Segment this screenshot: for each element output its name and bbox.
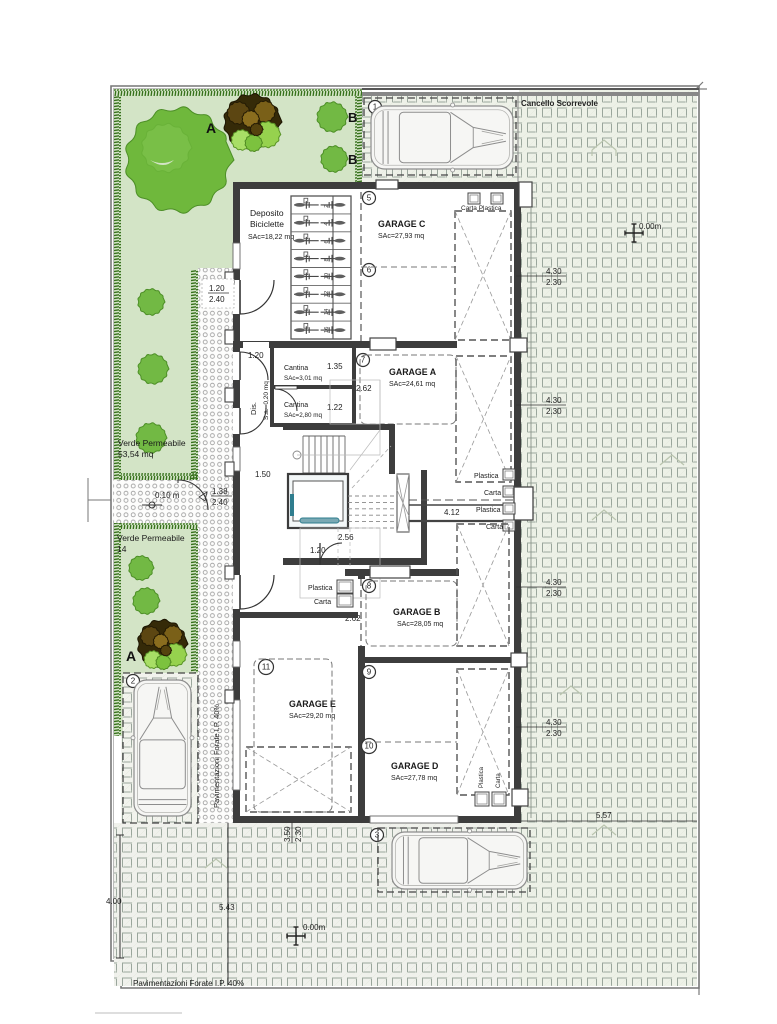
svg-text:GARAGE C: GARAGE C xyxy=(378,219,426,229)
svg-text:GARAGE B: GARAGE B xyxy=(393,607,440,617)
svg-text:3.50: 3.50 xyxy=(283,826,292,842)
svg-text:Carta: Carta xyxy=(496,773,502,788)
svg-text:Cantina: Cantina xyxy=(284,402,308,409)
svg-text:14: 14 xyxy=(117,544,127,554)
svg-text:2: 2 xyxy=(324,205,330,208)
svg-text:Carta Plastica: Carta Plastica xyxy=(461,205,502,212)
svg-text:4: 4 xyxy=(324,222,330,225)
svg-text:10: 10 xyxy=(324,273,330,279)
svg-text:B: B xyxy=(348,152,357,167)
svg-text:Plastica: Plastica xyxy=(308,585,333,592)
svg-text:SAc=2,80 mq: SAc=2,80 mq xyxy=(284,412,322,419)
svg-text:Biciclette: Biciclette xyxy=(250,219,284,229)
svg-text:2.56: 2.56 xyxy=(338,533,354,542)
svg-text:1.38: 1.38 xyxy=(212,487,228,496)
svg-text:SAc=27,78 mq: SAc=27,78 mq xyxy=(391,775,437,782)
svg-text:GARAGE A: GARAGE A xyxy=(389,367,437,377)
svg-text:1.22: 1.22 xyxy=(327,403,343,412)
svg-text:1.20: 1.20 xyxy=(248,351,264,360)
svg-text:Carta: Carta xyxy=(486,524,503,531)
svg-text:11: 11 xyxy=(262,663,271,672)
svg-text:4.30: 4.30 xyxy=(546,267,562,276)
svg-text:2.62: 2.62 xyxy=(356,384,372,393)
svg-text:16: 16 xyxy=(324,327,330,333)
svg-text:5: 5 xyxy=(367,194,372,203)
svg-text:2.40: 2.40 xyxy=(209,295,225,304)
svg-text:Plastica: Plastica xyxy=(479,766,485,788)
svg-text:A: A xyxy=(126,648,136,664)
svg-text:2.30: 2.30 xyxy=(546,589,562,598)
svg-text:2: 2 xyxy=(131,677,136,686)
svg-text:8: 8 xyxy=(367,582,372,591)
svg-text:1.20: 1.20 xyxy=(209,284,225,293)
svg-text:10: 10 xyxy=(365,742,374,751)
svg-text:4.30: 4.30 xyxy=(546,578,562,587)
svg-text:Pavimentazioni Forate I.P. 40%: Pavimentazioni Forate I.P. 40% xyxy=(133,979,244,988)
svg-text:Carta: Carta xyxy=(484,490,501,497)
svg-text:B: B xyxy=(348,110,357,125)
svg-text:S.a.=0,20 mq: S.a.=0,20 mq xyxy=(263,381,270,420)
svg-text:Verde Permeabile: Verde Permeabile xyxy=(117,533,185,543)
svg-text:9: 9 xyxy=(367,668,372,677)
svg-text:3: 3 xyxy=(375,831,380,840)
svg-text:5.57: 5.57 xyxy=(596,811,612,820)
svg-text:SAc=18,22 mq: SAc=18,22 mq xyxy=(248,234,294,241)
svg-text:0.00m: 0.00m xyxy=(303,923,326,932)
svg-text:Deposito: Deposito xyxy=(250,208,284,218)
svg-text:1.50: 1.50 xyxy=(255,470,271,479)
svg-text:Dis.: Dis. xyxy=(249,402,258,415)
svg-text:2.40: 2.40 xyxy=(212,498,228,507)
svg-text:GARAGE E: GARAGE E xyxy=(289,699,336,709)
svg-text:0.00m: 0.00m xyxy=(639,222,662,231)
svg-text:Plastica: Plastica xyxy=(476,507,501,514)
svg-text:4.30: 4.30 xyxy=(546,396,562,405)
svg-text:Cantina: Cantina xyxy=(284,365,308,372)
svg-text:Verde Permeabile: Verde Permeabile xyxy=(118,438,186,448)
svg-text:6: 6 xyxy=(324,240,330,243)
svg-text:4.12: 4.12 xyxy=(444,508,460,517)
svg-text:12: 12 xyxy=(324,291,330,297)
svg-text:1.35: 1.35 xyxy=(327,362,343,371)
svg-text:Pavimentazioni Forate I.P. 40%: Pavimentazioni Forate I.P. 40% xyxy=(212,704,221,808)
svg-text:4.30: 4.30 xyxy=(546,718,562,727)
svg-text:2.30: 2.30 xyxy=(546,729,562,738)
svg-text:Plastica: Plastica xyxy=(474,473,499,480)
svg-text:SAc=3,01 mq: SAc=3,01 mq xyxy=(284,375,322,382)
svg-text:SAc=24,61 mq: SAc=24,61 mq xyxy=(389,381,435,388)
svg-text:8: 8 xyxy=(324,258,330,261)
svg-text:2.30: 2.30 xyxy=(546,407,562,416)
svg-text:SAc=29,20 mq: SAc=29,20 mq xyxy=(289,713,335,720)
svg-text:1.20: 1.20 xyxy=(310,546,326,555)
svg-text:Carta: Carta xyxy=(314,599,331,606)
svg-text:A: A xyxy=(206,120,216,136)
svg-text:0.10 m: 0.10 m xyxy=(155,491,180,500)
svg-text:GARAGE D: GARAGE D xyxy=(391,761,438,771)
svg-text:2.30: 2.30 xyxy=(294,826,303,842)
svg-text:SAc=28,05 mq: SAc=28,05 mq xyxy=(397,621,443,628)
svg-text:5.43: 5.43 xyxy=(219,903,235,912)
svg-text:53,54 mq: 53,54 mq xyxy=(118,449,154,459)
svg-text:2.30: 2.30 xyxy=(546,278,562,287)
svg-text:7: 7 xyxy=(361,356,366,365)
svg-text:14: 14 xyxy=(324,309,330,315)
svg-text:SAc=27,93 mq: SAc=27,93 mq xyxy=(378,233,424,240)
svg-text:Cancello Scorrevole: Cancello Scorrevole xyxy=(521,99,598,108)
